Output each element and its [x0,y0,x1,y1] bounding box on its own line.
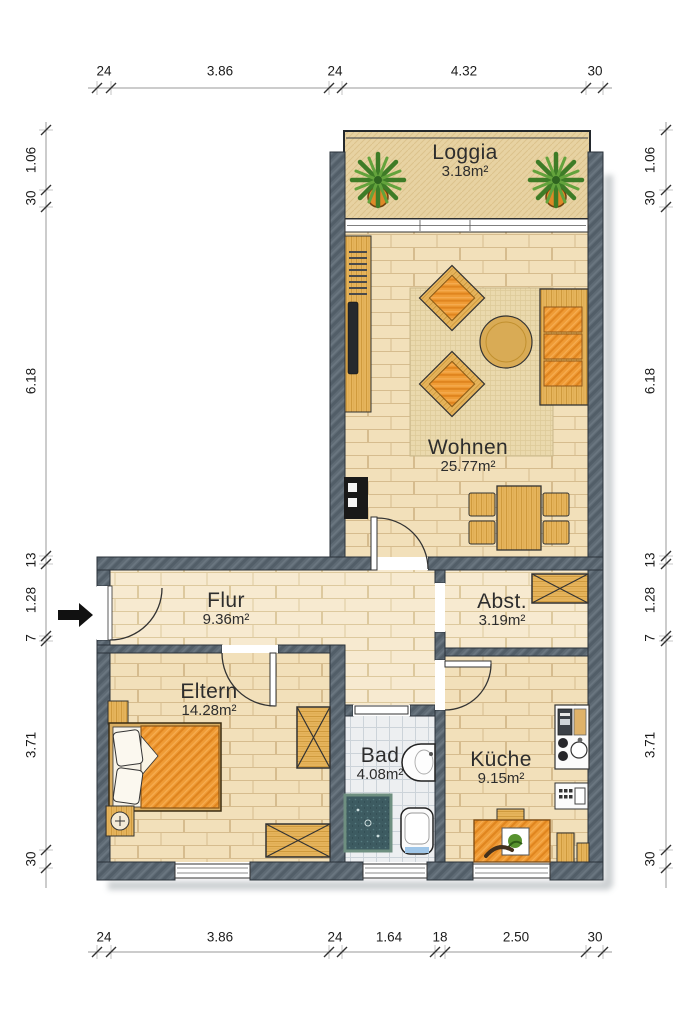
wall-mid-vertical-a [435,570,445,583]
sink [571,742,587,758]
burner-1 [558,738,568,748]
entrance-arrow-icon [58,603,93,627]
wall-wohnen-bottom-a [97,557,372,570]
floor-plan: Loggia 3.18m² Wohnen 25.77m² Flur 9.36m²… [0,0,683,1024]
wardrobe-bottom [266,824,330,857]
burner-2 [558,751,568,761]
wall-eltern-right [330,645,345,862]
wardrobe-right [297,707,330,768]
plant-right [530,154,582,207]
wall-mid-vertical-c [435,710,445,862]
abst-doorway [435,583,445,632]
microwave [555,783,588,809]
dining-chair-3 [543,493,569,516]
wall-bottom-b [250,862,363,880]
wall-abst-kueche [445,648,588,656]
wall-bad-top-b [410,705,435,716]
coffee-table [480,316,532,368]
bed [109,723,221,811]
bad-door [353,705,410,716]
shower [345,795,391,851]
wall-wohnen-bottom-b [428,557,603,570]
wall-right [588,152,603,880]
wall-bottom-a [97,862,175,880]
kitchen-chair-right-1 [557,833,574,862]
kitchen-table [474,820,550,862]
wall-bottom-d [550,862,603,880]
window-loggia-band [345,219,588,232]
kitchen-counter [555,705,589,769]
kitchen-chair-right-2 [577,843,589,862]
sofa [540,289,588,405]
window-eltern [175,864,250,878]
dining-chair-4 [543,521,569,544]
wall-flur-eltern-a [97,645,222,653]
wall-flur-eltern-b [278,645,330,653]
wall-bad-top-a [345,705,353,716]
cutting-board [574,709,586,735]
wall-left-a [97,570,110,586]
faucet [578,738,583,743]
wall-bottom-c [427,862,473,880]
tv [348,302,358,374]
plant-left [352,154,404,207]
floor-plan-drawing [0,0,683,1024]
wall-left-b [97,640,110,880]
wall-mid-vertical-b [435,632,445,660]
window-bad [363,864,427,878]
dining-chair-2 [469,521,495,544]
abst-shelf [532,574,588,603]
window-kueche [473,864,550,878]
wall-upper-left [330,152,345,570]
heater-vent-2 [348,498,357,507]
heater-vent-1 [348,483,357,492]
flur-floor-stub [345,645,435,705]
dining-chair-1 [469,493,495,516]
nightstand [108,701,128,724]
washbasin [402,744,435,781]
toilet [401,808,433,854]
lamp-table [106,806,134,836]
dining-table [497,486,541,550]
